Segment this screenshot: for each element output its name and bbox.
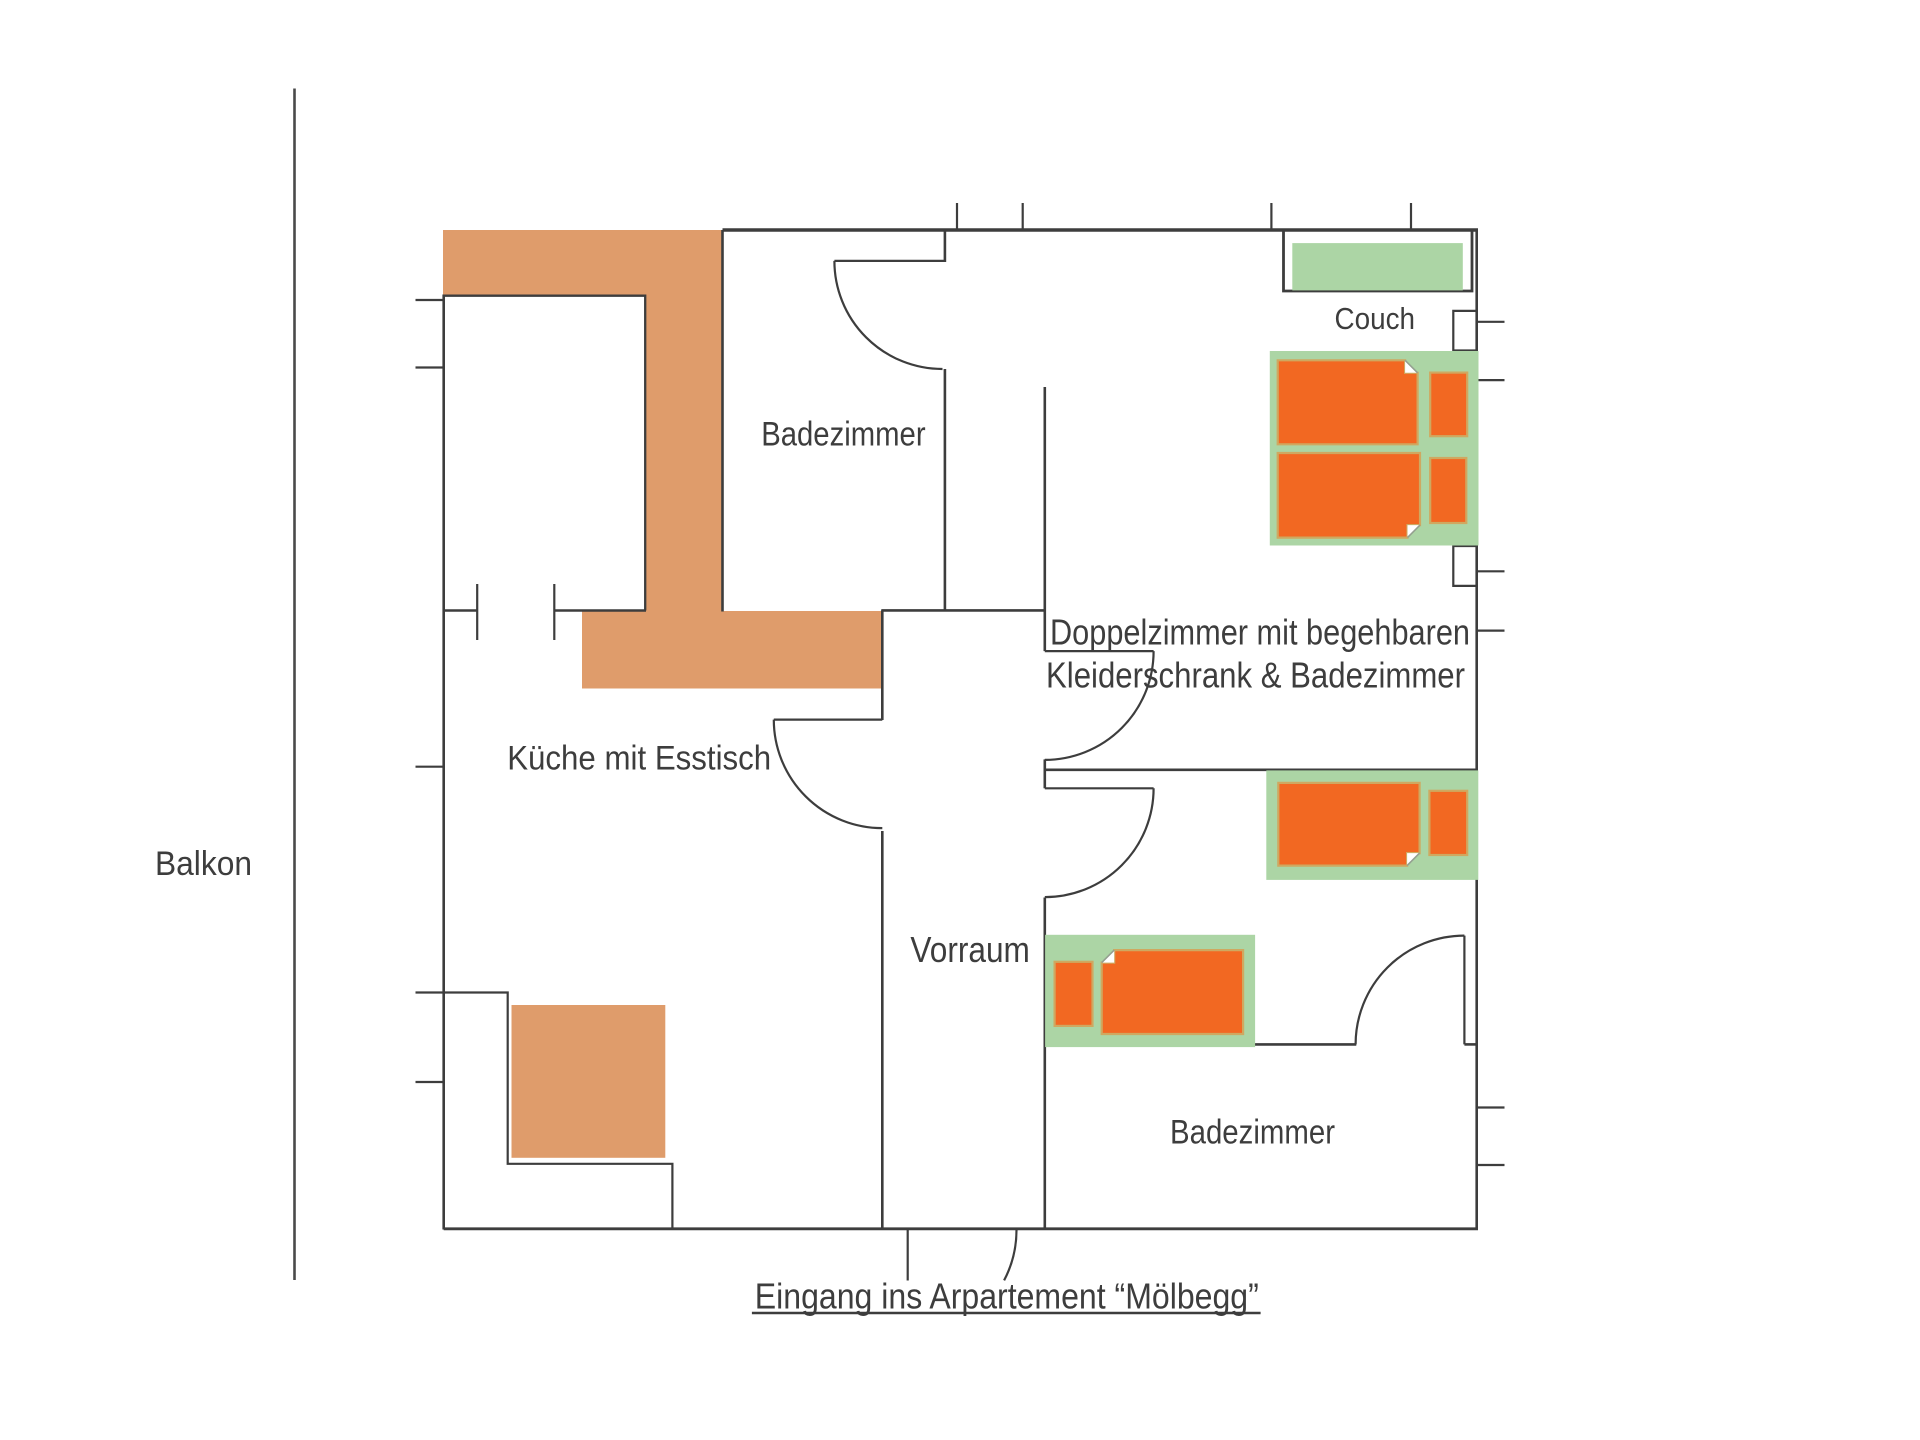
svg-text:Küche mit Esstisch: Küche mit Esstisch bbox=[507, 739, 771, 777]
svg-text:Doppelzimmer mit begehbaren: Doppelzimmer mit begehbaren bbox=[1050, 612, 1470, 653]
svg-text:Couch: Couch bbox=[1335, 301, 1416, 336]
svg-text:Balkon: Balkon bbox=[155, 845, 252, 883]
svg-text:Eingang ins Arpartement “Mölbe: Eingang ins Arpartement “Mölbegg” bbox=[755, 1275, 1259, 1316]
svg-text:Kleiderschrank & Badezimmer: Kleiderschrank & Badezimmer bbox=[1046, 655, 1465, 696]
svg-text:Vorraum: Vorraum bbox=[910, 929, 1030, 970]
svg-text:Badezimmer: Badezimmer bbox=[1170, 1114, 1335, 1152]
svg-text:Badezimmer: Badezimmer bbox=[761, 416, 925, 454]
